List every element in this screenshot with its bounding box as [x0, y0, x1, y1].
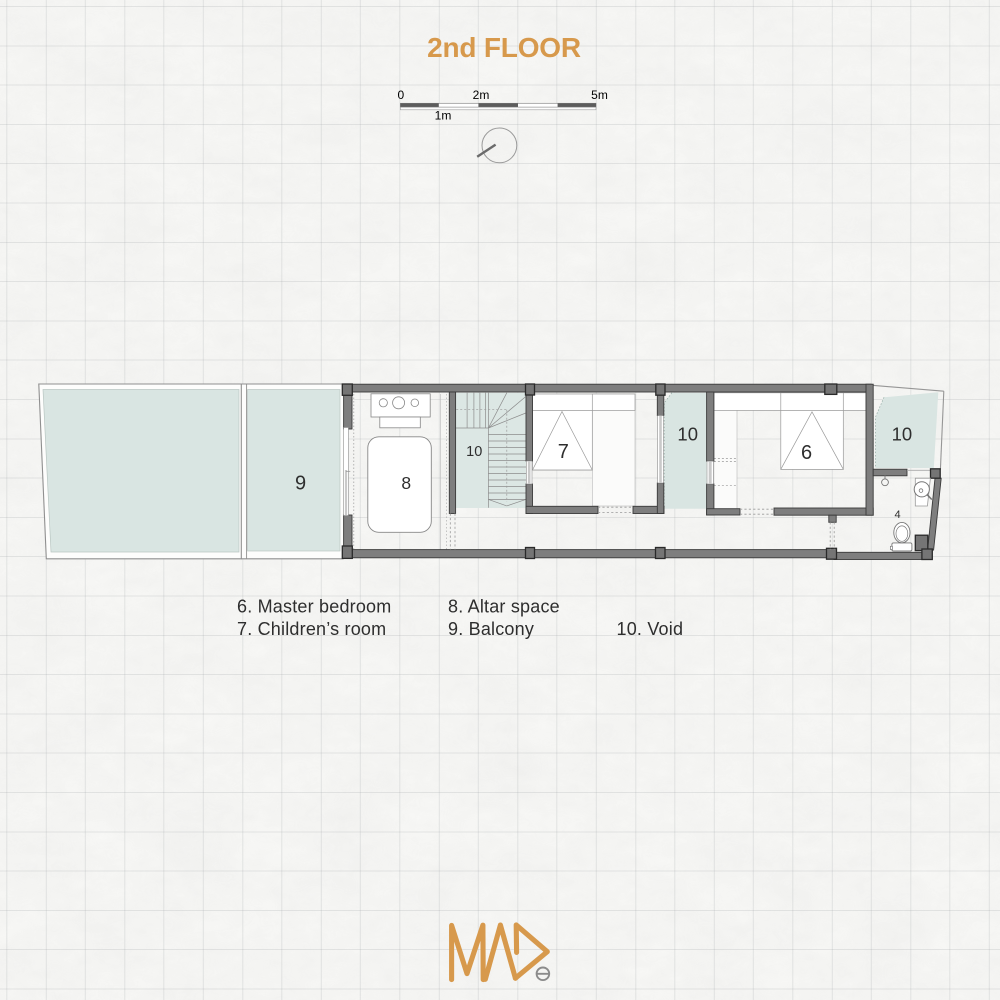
svg-text:1m: 1m	[435, 109, 452, 123]
svg-text:7. Children’s room: 7. Children’s room	[237, 619, 386, 639]
svg-text:4: 4	[894, 509, 900, 521]
svg-text:9: 9	[295, 473, 306, 495]
svg-text:2nd FLOOR: 2nd FLOOR	[427, 32, 581, 63]
svg-text:2m: 2m	[473, 88, 490, 102]
svg-text:5m: 5m	[591, 88, 608, 102]
svg-text:0: 0	[397, 88, 404, 102]
svg-text:10: 10	[466, 444, 482, 460]
svg-text:6: 6	[801, 442, 812, 464]
svg-text:10: 10	[892, 423, 913, 444]
svg-text:6. Master bedroom: 6. Master bedroom	[237, 597, 391, 617]
svg-text:8: 8	[401, 473, 411, 493]
svg-text:7: 7	[558, 441, 569, 463]
svg-text:10: 10	[677, 423, 698, 444]
svg-text:8. Altar space: 8. Altar space	[448, 597, 560, 617]
svg-text:10. Void: 10. Void	[617, 619, 684, 639]
svg-text:9. Balcony: 9. Balcony	[448, 619, 534, 639]
